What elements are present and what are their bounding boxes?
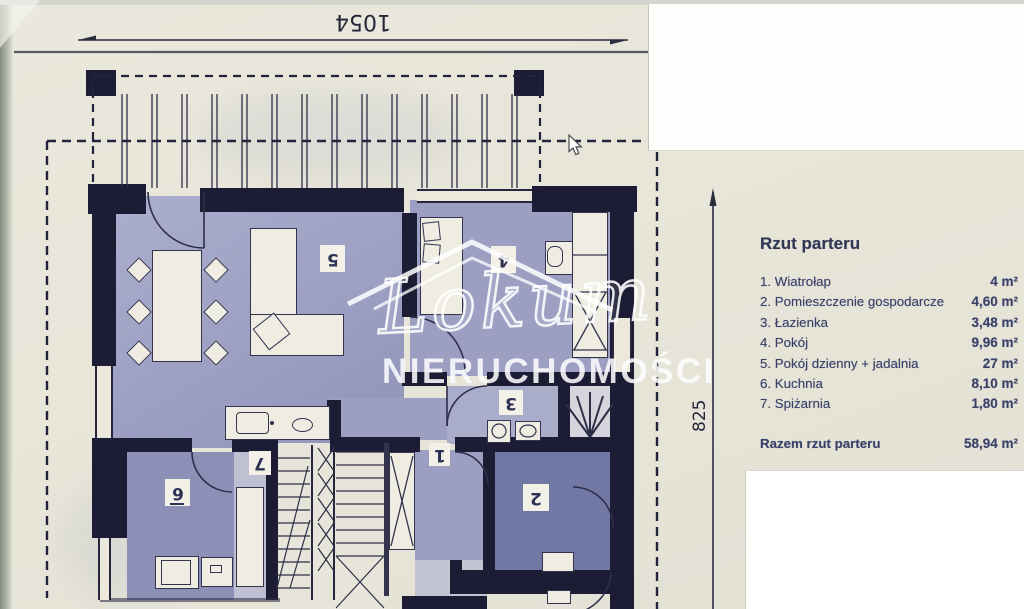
toilet-bowl: [520, 425, 536, 437]
legend-room-label: 4. Pokój: [760, 335, 808, 350]
legend-total-value: 58,94 m²: [964, 436, 1018, 451]
stair-lattice: [318, 448, 334, 571]
legend-room-area: 4 m²: [990, 274, 1018, 289]
pergola-outline: [93, 76, 540, 190]
legend-row: 7. Spiżarnia1,80 m²: [760, 396, 1018, 416]
legend-total-label: Razem rzut parteru: [760, 436, 880, 451]
legend-title: Rzut parteru: [760, 234, 1018, 254]
legend-room-label: 5. Pokój dzienny + jadalnia: [760, 356, 919, 371]
floorplan-screenshot: 5 4 3 1 2 6 7: [0, 0, 1024, 609]
legend-items: 1. Wiatrołap4 m²2. Pomieszczenie gospoda…: [760, 274, 1018, 417]
legend-row: 2. Pomieszczenie gospodarcze4,60 m²: [760, 294, 1018, 314]
legend-room-area: 4,60 m²: [971, 294, 1018, 309]
stair-stringers: [312, 445, 334, 600]
legend-row: 1. Wiatrołap4 m²: [760, 274, 1018, 294]
legend-room-label: 7. Spiżarnia: [760, 396, 830, 411]
legend-total-row: Razem rzut parteru 58,94 m²: [760, 436, 1018, 456]
white-panel-bottom: [745, 470, 1024, 609]
stair-diagonals: [277, 466, 384, 608]
legend-room-label: 6. Kuchnia: [760, 376, 823, 391]
legend-room-label: 2. Pomieszczenie gospodarcze: [760, 294, 944, 309]
legend-room-area: 1,80 m²: [971, 396, 1018, 411]
dimension-top-label: 1054: [328, 9, 398, 34]
legend-room-label: 1. Wiatrołap: [760, 274, 831, 289]
door-arcs: [148, 192, 613, 609]
legend-row: 5. Pokój dzienny + jadalnia27 m²: [760, 356, 1018, 376]
stair-treads: [276, 452, 384, 588]
white-panel-top: [648, 4, 1024, 151]
dimension-right-label: 825: [690, 370, 710, 432]
legend-room-area: 9,96 m²: [971, 335, 1018, 350]
legend-row: 3. Łazienka3,48 m²: [760, 315, 1018, 335]
watermark-subtitle: NIERUCHOMOŚCI: [382, 352, 716, 392]
legend-row: 6. Kuchnia8,10 m²: [760, 376, 1018, 396]
legend-row: 4. Pokój9,96 m²: [760, 335, 1018, 355]
washbasin-bowl: [492, 424, 506, 438]
boiler-rays: [566, 392, 613, 437]
legend-room-area: 8,10 m²: [971, 376, 1018, 391]
watermark-brand: Lokum: [376, 251, 656, 351]
mouse-cursor: [568, 134, 588, 158]
legend-room-label: 3. Łazienka: [760, 315, 828, 330]
legend-room-area: 27 m²: [983, 356, 1018, 371]
dim-arrow-up: [710, 188, 717, 206]
dim-arrow-left: [78, 36, 96, 41]
dim-arrow-right: [610, 40, 628, 45]
legend: Rzut parteru 1. Wiatrołap4 m²2. Pomieszc…: [760, 234, 1018, 456]
legend-room-area: 3,48 m²: [971, 315, 1018, 330]
